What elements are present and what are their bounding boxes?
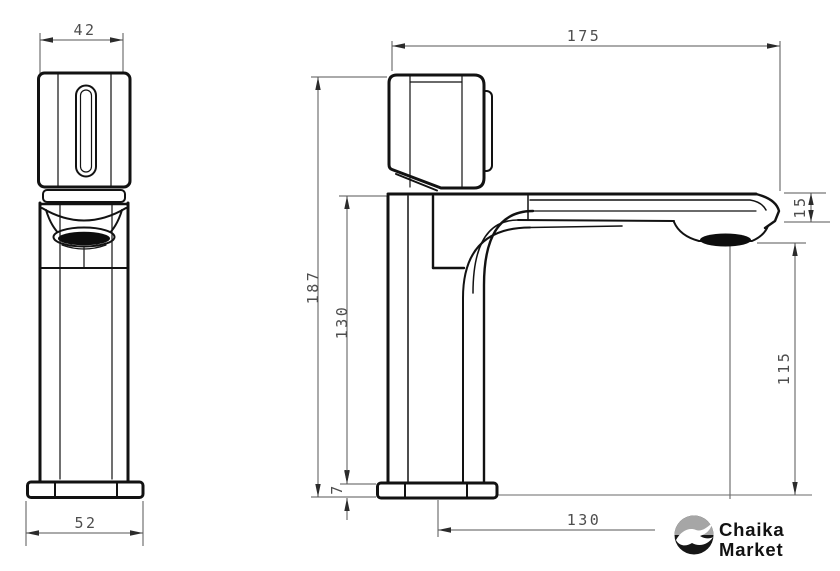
dimension-label: 7 (328, 483, 346, 495)
dimension-arrow (130, 530, 143, 535)
dimension-arrow (315, 77, 320, 90)
dimension-base-width: 52 (26, 501, 143, 546)
body-curve (42, 208, 126, 221)
dimension-arrow (808, 193, 813, 205)
dimension-label: 52 (74, 514, 97, 532)
dimension-label: 175 (567, 27, 602, 45)
dimension-label: 15 (791, 195, 809, 218)
faucet-dimension-drawing: 42 52 175 187 130 7 (0, 0, 840, 571)
technical-drawing-page: 42 52 175 187 130 7 (0, 0, 840, 571)
logo-text-line2: Market (719, 539, 783, 560)
seagull-icon (675, 516, 714, 555)
dimension-arrow (392, 43, 405, 48)
spout-top-facet (530, 200, 766, 210)
aerator-outlet (700, 234, 751, 247)
front-view-drawing (28, 73, 144, 498)
dimension-arrow (438, 527, 451, 532)
dimension-arrow (40, 37, 53, 42)
body-bend-outer (463, 228, 530, 483)
dimension-body-height: 130 (333, 196, 387, 483)
spout-tip (756, 194, 779, 228)
dimension-arrow (344, 471, 349, 484)
dimension-arrow (344, 498, 349, 511)
dimension-label: 115 (775, 351, 793, 386)
dimension-label: 130 (333, 305, 351, 340)
dimension-arrow (26, 530, 39, 535)
dimension-base-thickness: 7 (328, 461, 376, 520)
dimension-arrow (792, 243, 797, 256)
collar-ring (43, 190, 125, 202)
dimension-outlet-clearance: 115 (757, 243, 806, 495)
dimension-label: 42 (73, 21, 96, 39)
base-outline (378, 483, 498, 498)
dimension-label: 130 (567, 511, 602, 529)
dimension-arrow (344, 196, 349, 209)
base-outline (28, 482, 144, 498)
spout-underside-line (530, 226, 622, 228)
handle-outline (389, 75, 484, 188)
dimension-label: 187 (304, 270, 322, 305)
dimension-total-height: 187 (304, 77, 387, 497)
body-bend-inner (484, 211, 533, 482)
logo: Chaika Market (675, 516, 785, 561)
side-view-drawing (378, 75, 780, 498)
aerator-outlet (58, 232, 110, 246)
dimension-arrow (315, 484, 320, 497)
dimension-arrow (767, 43, 780, 48)
dimension-arrow (792, 482, 797, 495)
logo-text-line1: Chaika (719, 519, 784, 540)
dimension-spout-end-height: 15 (784, 193, 830, 222)
dimension-arrow (110, 37, 123, 42)
spout-underside-edge (518, 220, 674, 221)
dimension-handle-width: 42 (40, 21, 123, 74)
dimension-arrow (808, 210, 813, 222)
